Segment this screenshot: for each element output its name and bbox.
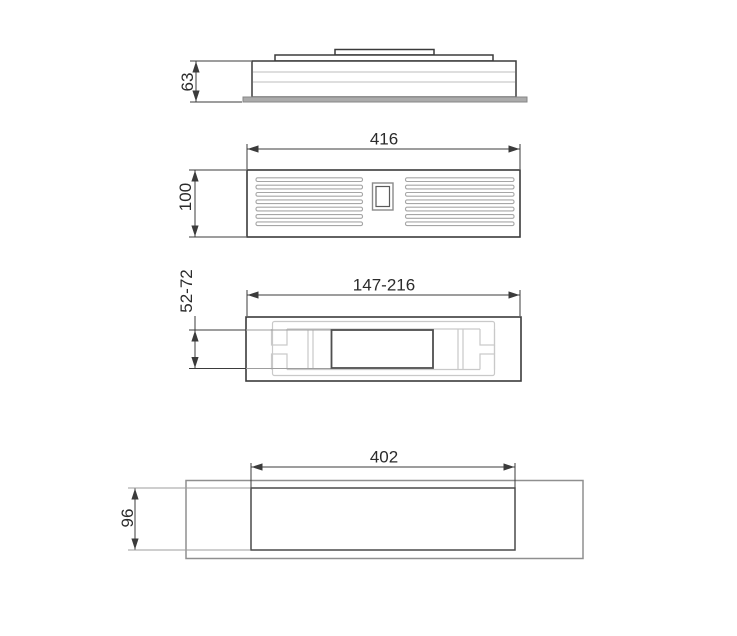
view-side-profile: 63: [178, 50, 527, 103]
top-tab-small: [335, 50, 434, 56]
view-front-grille: 416 100: [176, 130, 520, 238]
center-switch-inner: [376, 187, 390, 207]
dim-front-width: 416: [370, 130, 398, 149]
dim-side-height: 63: [178, 73, 197, 92]
dim-cutout-height: 96: [118, 509, 137, 528]
dim-front-height: 100: [176, 183, 195, 211]
dim-cutout-width: 402: [370, 448, 398, 467]
body-outline: [252, 61, 516, 97]
view-mounting-bracket: 147-216 52-72: [177, 269, 521, 381]
base-flange: [243, 97, 527, 102]
vent-slats-right: [406, 178, 515, 226]
view-recess-cutout: 402 96: [118, 448, 583, 559]
bracket-center-plate: [332, 330, 434, 368]
technical-drawing: 63 416: [0, 0, 737, 636]
dim-bracket-height-range: 52-72: [177, 269, 196, 312]
technical-drawing-page: 63 416: [0, 0, 737, 636]
cutout-inner-opening: [251, 488, 515, 550]
top-tab-wide: [275, 55, 493, 61]
vent-slats-left: [256, 178, 363, 226]
dim-bracket-width-range: 147-216: [353, 276, 415, 295]
